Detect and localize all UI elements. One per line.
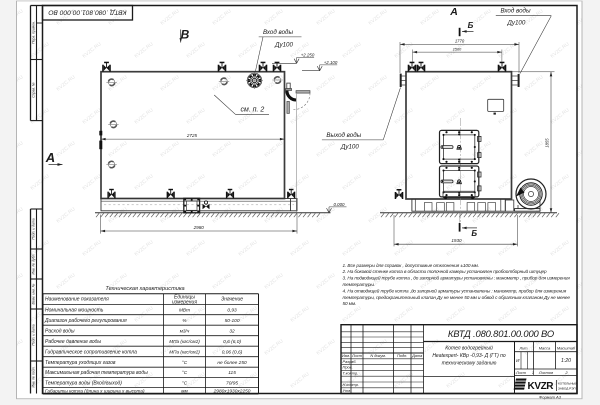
svg-text:Техническая характеристика: Техническая характеристика (105, 286, 184, 292)
svg-text:Подп. и дата: Подп. и дата (32, 324, 36, 345)
svg-text:Значение: Значение (221, 297, 243, 303)
svg-text:Лист: Лист (515, 370, 527, 375)
svg-text:Утв.: Утв. (343, 388, 352, 393)
svg-text:115: 115 (228, 370, 236, 376)
svg-text:не более 250: не более 250 (217, 360, 247, 366)
svg-text:Выход воды: Выход воды (326, 132, 361, 139)
svg-text:Формат А3: Формат А3 (539, 394, 562, 399)
svg-text:0,93: 0,93 (227, 307, 237, 313)
svg-text:ЗАВОД РЭП: ЗАВОД РЭП (558, 386, 576, 390)
svg-text:%: % (182, 318, 186, 323)
svg-text:70/95: 70/95 (226, 380, 238, 386)
svg-text:Ду100: Ду100 (506, 20, 525, 27)
svg-text:Масса: Масса (539, 346, 551, 351)
svg-text:0,06 (0,6): 0,06 (0,6) (222, 349, 243, 355)
svg-text:KVZR: KVZR (528, 381, 555, 392)
svg-text:Номинальная мощность: Номинальная мощность (45, 307, 104, 313)
svg-text:°С: °С (182, 370, 188, 375)
svg-text:Изм.: Изм. (342, 353, 350, 358)
svg-text:Температура уходящих газов: Температура уходящих газов (45, 360, 116, 366)
svg-text:А: А (45, 150, 55, 165)
svg-text:МПа (кгс/см2): МПа (кгс/см2) (169, 339, 200, 344)
svg-text:мм: мм (181, 389, 188, 394)
svg-text:4. На отводящей трубе котла ,: 4. На отводящей трубе котла ,до запорной… (343, 287, 567, 293)
svg-text:1:20: 1:20 (561, 358, 571, 364)
svg-text:Ду100: Ду100 (340, 143, 359, 150)
svg-text:техническому заданию: техническому заданию (442, 361, 497, 367)
svg-text:Подп. и дата: Подп. и дата (32, 218, 36, 239)
svg-text:Дата: Дата (411, 353, 423, 358)
svg-text:32: 32 (229, 328, 235, 334)
svg-text:Габариты котла (длина х ширина: Габариты котла (длина х ширина х высота) (45, 389, 145, 394)
svg-text:N докум.: N докум. (370, 353, 386, 358)
svg-text:0,6 (6,0): 0,6 (6,0) (223, 339, 241, 345)
svg-text:2725: 2725 (186, 133, 198, 138)
svg-text:Наименование показателя: Наименование показателя (45, 297, 109, 303)
svg-text:Справ. №: Справ. № (32, 82, 36, 98)
svg-text:2980: 2980 (193, 225, 205, 230)
svg-text:Лит.: Лит. (518, 346, 528, 351)
svg-text:+2.100: +2.100 (324, 60, 338, 65)
svg-text:Перв. примен.: Перв. примен. (32, 21, 36, 44)
svg-text:Подп.: Подп. (397, 353, 407, 358)
svg-text:Вход воды: Вход воды (263, 29, 293, 36)
svg-text:В: В (181, 28, 190, 42)
svg-text:1. Все размеры для справок ,: 1. Все размеры для справок , допустимые … (343, 263, 480, 268)
svg-text:температуры.: температуры. (343, 282, 375, 287)
svg-text:м3/ч: м3/ч (180, 328, 190, 333)
svg-text:КВТД .080.801.00.000 ВО: КВТД .080.801.00.000 ВО (48, 8, 127, 15)
svg-text:Рабочее давление воды: Рабочее давление воды (45, 339, 101, 345)
svg-text:Heatexpert- КВр -0,93- Д (ГТ): Heatexpert- КВр -0,93- Д (ГТ) по (432, 353, 506, 359)
svg-text:Н.контр.: Н.контр. (343, 382, 359, 387)
svg-text:Диапазон рабочего регулировани: Диапазон рабочего регулирования (44, 318, 127, 324)
svg-text:Температура воды (Вход/выход): Температура воды (Вход/выход) (45, 380, 122, 386)
svg-text:°С: °С (182, 380, 188, 385)
svg-text:измерения: измерения (172, 299, 197, 305)
svg-text:1560: 1560 (453, 47, 462, 51)
svg-text:Инв. № подл.: Инв. № подл. (32, 366, 36, 387)
svg-text:Лист: Лист (351, 353, 363, 358)
svg-text:Вход воды: Вход воды (500, 8, 530, 15)
svg-text:Гидравлическое сопротивление к: Гидравлическое сопротивление котла (45, 349, 137, 355)
svg-text:+2.250: +2.250 (301, 53, 315, 58)
svg-text:Б: Б (471, 229, 477, 238)
svg-text:Ду100: Ду100 (274, 41, 293, 48)
svg-text:1930: 1930 (451, 238, 462, 243)
svg-text:Взам. инв. №: Взам. инв. № (32, 283, 36, 304)
svg-text:Расход воды: Расход воды (45, 328, 75, 334)
svg-text:Разраб.: Разраб. (343, 359, 357, 364)
svg-text:Масштаб: Масштаб (557, 346, 576, 351)
svg-text:50 мм.: 50 мм. (343, 301, 357, 306)
svg-text:А: А (449, 6, 458, 18)
svg-text:КВТД .080.801.00.000 ВО: КВТД .080.801.00.000 ВО (448, 328, 555, 339)
svg-text:МВт: МВт (179, 307, 190, 312)
svg-text:МПа (кгс/см2): МПа (кгс/см2) (169, 349, 200, 354)
svg-text:50-100: 50-100 (225, 318, 240, 324)
svg-text:°С: °С (182, 360, 188, 365)
svg-text:2980х1930х2250: 2980х1930х2250 (213, 389, 251, 395)
svg-text:Максимальная рабочая температу: Максимальная рабочая температура воды (45, 370, 148, 376)
svg-text:КОТЕЛЬНЫЙ: КОТЕЛЬНЫЙ (558, 382, 577, 386)
svg-text:Пров.: Пров. (343, 365, 353, 370)
svg-text:см. п. 2: см. п. 2 (240, 107, 264, 114)
svg-text:температуры, предохранительный: температуры, предохранительный клапан Ду… (343, 294, 571, 300)
svg-text:0.000: 0.000 (334, 202, 346, 207)
svg-text:1855: 1855 (545, 138, 550, 148)
svg-text:3. На подводящей трубе котла: 3. На подводящей трубе котла , до запорн… (343, 275, 571, 281)
svg-text:Т.контр.: Т.контр. (343, 371, 359, 376)
svg-text:Б: Б (468, 21, 474, 30)
svg-text:Инв. № дубл.: Инв. № дубл. (32, 254, 36, 275)
svg-text:2. На боковой стенке котла в: 2. На боковой стенке котла в области топ… (342, 268, 548, 274)
svg-text:Листов: Листов (538, 370, 553, 375)
svg-text:1770: 1770 (455, 39, 465, 44)
svg-text:Котел водогрейный: Котел водогрейный (445, 345, 493, 352)
